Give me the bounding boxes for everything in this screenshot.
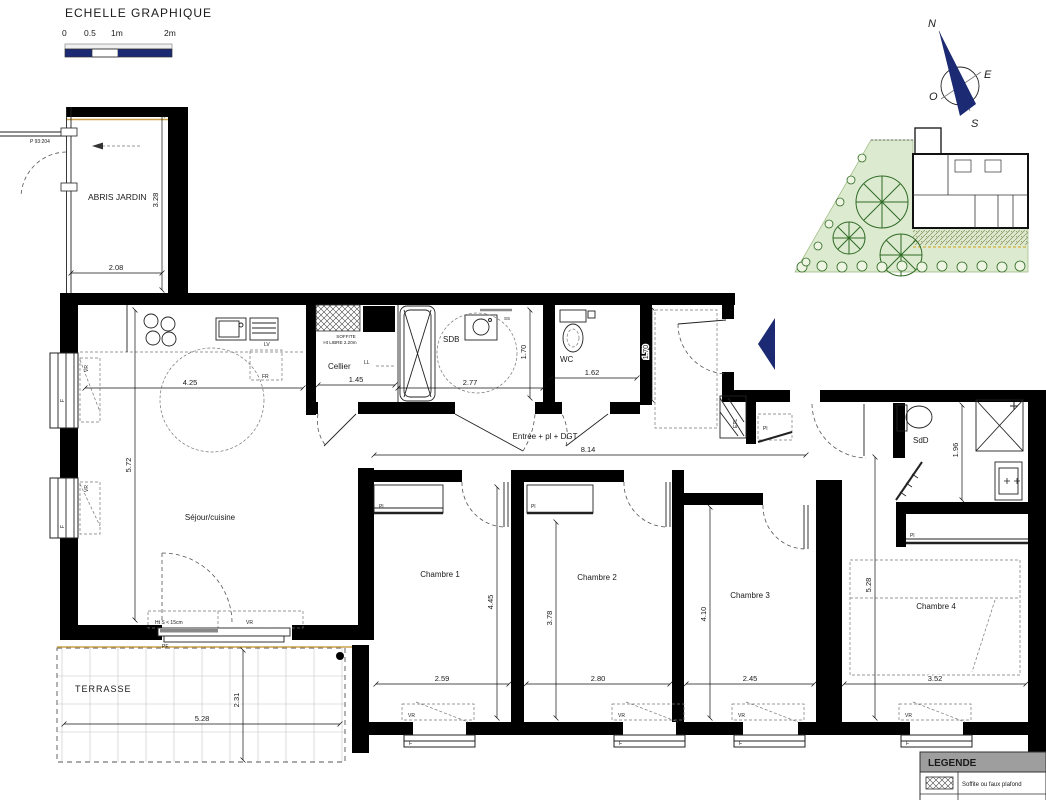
terrasse-dim-h: 2.31: [232, 693, 241, 708]
shower: [976, 400, 1023, 451]
ch3-dim-w: 2.45: [743, 674, 758, 683]
floorplan-page: ECHELLE GRAPHIQUE 0 0.5 1m 2m N E O S: [0, 0, 1046, 800]
wc-dim-h: 1.70: [641, 345, 650, 360]
vr-tag: VR: [905, 713, 912, 719]
ch3-door-swing: [763, 505, 804, 549]
terrasse-label: TERRASSE: [75, 684, 132, 694]
sejour-dim-h: 5.72: [124, 458, 133, 473]
abris-dim-w: 2.08: [109, 263, 124, 272]
walls: [60, 293, 1046, 755]
abris-door-swing: [21, 152, 66, 197]
sejour-label: Séjour/cuisine: [185, 513, 236, 522]
site-building: [913, 128, 1028, 228]
compass-needle: [939, 31, 976, 116]
compass-n: N: [928, 18, 936, 30]
ch1-door-swing: [462, 482, 504, 527]
room-sejour-cuisine: LV FR Séjour/cuisine 4.25 5.72: [80, 305, 305, 623]
f-tag: F: [906, 741, 909, 747]
sdd-dim-h: 1.96: [951, 443, 960, 458]
soffite-tag-1: SOFFITE: [336, 334, 355, 339]
legend-title: LEGENDE: [928, 758, 977, 769]
ss-tag: SS: [504, 316, 510, 321]
sejour-dim-w: 4.25: [183, 378, 198, 387]
lv-tag: LV: [264, 342, 270, 348]
f-tag: F: [409, 741, 412, 747]
ch3-label: Chambre 3: [730, 591, 770, 600]
ch1-dim-w: 2.59: [435, 674, 450, 683]
vr-tag: VR: [408, 713, 415, 719]
ch4-label: Chambre 4: [916, 602, 956, 611]
compass-e: E: [984, 69, 992, 81]
cellier-label: Cellier: [328, 362, 351, 371]
ht-s-tag: Ht S < 15cm: [155, 620, 183, 626]
legend-hatch-swatch: [926, 777, 953, 789]
entry-closet: Pl: [758, 414, 792, 442]
pf-tag: PF: [162, 644, 168, 650]
room-chambre1: Pl Chambre 1 4.45 2.59: [374, 482, 509, 718]
scale-bar-graphic: [65, 44, 172, 57]
ch2-closet: Pl: [527, 485, 593, 513]
f-tag: F: [739, 741, 742, 747]
pl-tag-entry: Pl: [763, 426, 767, 432]
scale-tick-05: 0.5: [84, 28, 96, 38]
sdd-sliding-door: [896, 462, 922, 500]
window-f-tag: F: [60, 399, 66, 402]
window-vr-tag: VR: [84, 365, 90, 372]
soffite-tag-2: Ht LIBRE 2.20m: [323, 340, 356, 345]
soffite-hatch: [316, 305, 360, 331]
sdb-sink: [465, 315, 497, 340]
fr-tag: FR: [262, 374, 269, 380]
ch4-dim-h: 5.28: [864, 578, 873, 593]
pl-tag-ch1: Pl: [379, 504, 383, 510]
abris-label: ABRIS JARDIN: [88, 192, 147, 202]
sejour-window-upper: F VR: [50, 353, 100, 428]
room-wc: WC 1.62 1.70: [551, 308, 652, 446]
sdd-label: SdD: [913, 436, 929, 445]
wc-dim-w: 1.62: [585, 368, 600, 377]
room-entree: Entrée + pl + DGT 8.14 ETL Pl: [374, 310, 866, 458]
scale-bar: ECHELLE GRAPHIQUE 0 0.5 1m 2m: [62, 6, 212, 57]
sdb-dim-w: 2.77: [463, 378, 478, 387]
window-f-tag: F: [60, 525, 66, 528]
vr-tag: VR: [618, 713, 625, 719]
room-sdd: SdD 1.96: [896, 400, 1023, 500]
sdb-label: SDB: [443, 335, 459, 344]
ch2-label: Chambre 2: [577, 573, 617, 582]
sdd-sink: [995, 462, 1022, 500]
ch2-door-swing: [624, 482, 666, 527]
ch2-dim-w: 2.80: [591, 674, 606, 683]
compass-rose: N E O S: [928, 18, 992, 130]
wc-door-leaf: [566, 414, 608, 446]
pl-tag-ch4: Pl: [910, 533, 914, 539]
sdd-wc-bowl: [906, 406, 932, 428]
window-vr-tag: VR: [84, 485, 90, 492]
scale-title: ECHELLE GRAPHIQUE: [65, 6, 212, 20]
wc-bowl: [563, 324, 583, 352]
entry-door-leaf: [678, 320, 726, 324]
site-tree-medium: [833, 222, 865, 254]
scale-tick-2m: 2m: [164, 28, 176, 38]
cellier-dim-w: 1.45: [349, 375, 364, 384]
floorplan-drawing: ECHELLE GRAPHIQUE 0 0.5 1m 2m N E O S: [0, 0, 1046, 800]
entree-dim-w: 8.14: [581, 445, 596, 454]
ch3-dim-h: 4.10: [699, 607, 708, 622]
terrace-post-dot: [336, 652, 344, 660]
room-chambre4: Pl Chambre 4 5.28 3.52: [844, 457, 1028, 718]
hall-door-swing: [812, 404, 866, 458]
ch2-dim-h: 3.78: [545, 611, 554, 626]
ch1-closet: Pl: [374, 485, 443, 513]
wc-cistern: [560, 310, 586, 322]
terrasse-dim-w: 5.28: [195, 714, 210, 723]
abris-arrow-icon: [92, 143, 103, 150]
vr-tag: VR: [246, 620, 253, 626]
ll-tag: LL: [364, 360, 370, 366]
entry-door-swing: [678, 324, 726, 374]
scale-tick-1m: 1m: [111, 28, 123, 38]
vr-tag: VR: [738, 713, 745, 719]
sejour-window-lower: F VR: [50, 478, 100, 538]
ch1-dim-h: 4.45: [486, 595, 495, 610]
site-plan-thumbnail: [795, 128, 1028, 276]
terrace-door-swing: [162, 553, 232, 622]
room-chambre2: Pl Chambre 2 3.78 2.80: [526, 482, 670, 718]
compass-s: S: [971, 118, 979, 130]
site-ref-label: P 93:204: [30, 139, 50, 145]
entree-label: Entrée + pl + DGT: [513, 432, 578, 441]
room-chambre3: Chambre 3 4.10 2.45: [686, 505, 814, 718]
ch1-label: Chambre 1: [420, 570, 460, 579]
dishwasher: LV: [250, 318, 278, 348]
cellier-door-leaf: [324, 414, 356, 446]
ch4-closet: Pl: [906, 533, 1028, 543]
ch4-bed-outline: [850, 560, 1020, 675]
porte-fenetre: Ht S < 15cm VR PF: [148, 611, 303, 650]
pl-tag-ch2: Pl: [531, 504, 535, 510]
abris-post-dot: [172, 282, 181, 291]
room-cellier: SOFFITE Ht LIBRE 2.20m Cellier LL 1.45: [316, 305, 398, 446]
legend: LEGENDE Soffite ou faux plafond F Fenêtr…: [920, 752, 1046, 800]
compass-o: O: [929, 91, 938, 103]
terrace-tiles: [57, 648, 345, 762]
fridge: FR: [250, 350, 282, 380]
dining-table-circle: [160, 348, 264, 452]
etl-closet: ETL: [720, 396, 746, 438]
room-abris-jardin: P 93:204 ABRIS JARDIN 3.28 2.08: [0, 107, 188, 293]
wc-label: WC: [560, 355, 574, 364]
abris-dim-h: 3.28: [151, 193, 160, 208]
f-tag: F: [619, 741, 622, 747]
room-sdb: SS SDB 2.77 1.70: [398, 306, 543, 451]
legend-row1-label: Soffite ou faux plafond: [962, 782, 1022, 788]
scale-tick-0: 0: [62, 28, 67, 38]
kitchen-sink: [216, 318, 246, 340]
ch4-dim-w: 3.52: [928, 674, 943, 683]
site-tree-large: [856, 176, 908, 228]
entry-arrow-icon: [758, 318, 775, 370]
etl-tag: ETL: [733, 419, 739, 428]
sdb-dim-h: 1.70: [519, 345, 528, 360]
